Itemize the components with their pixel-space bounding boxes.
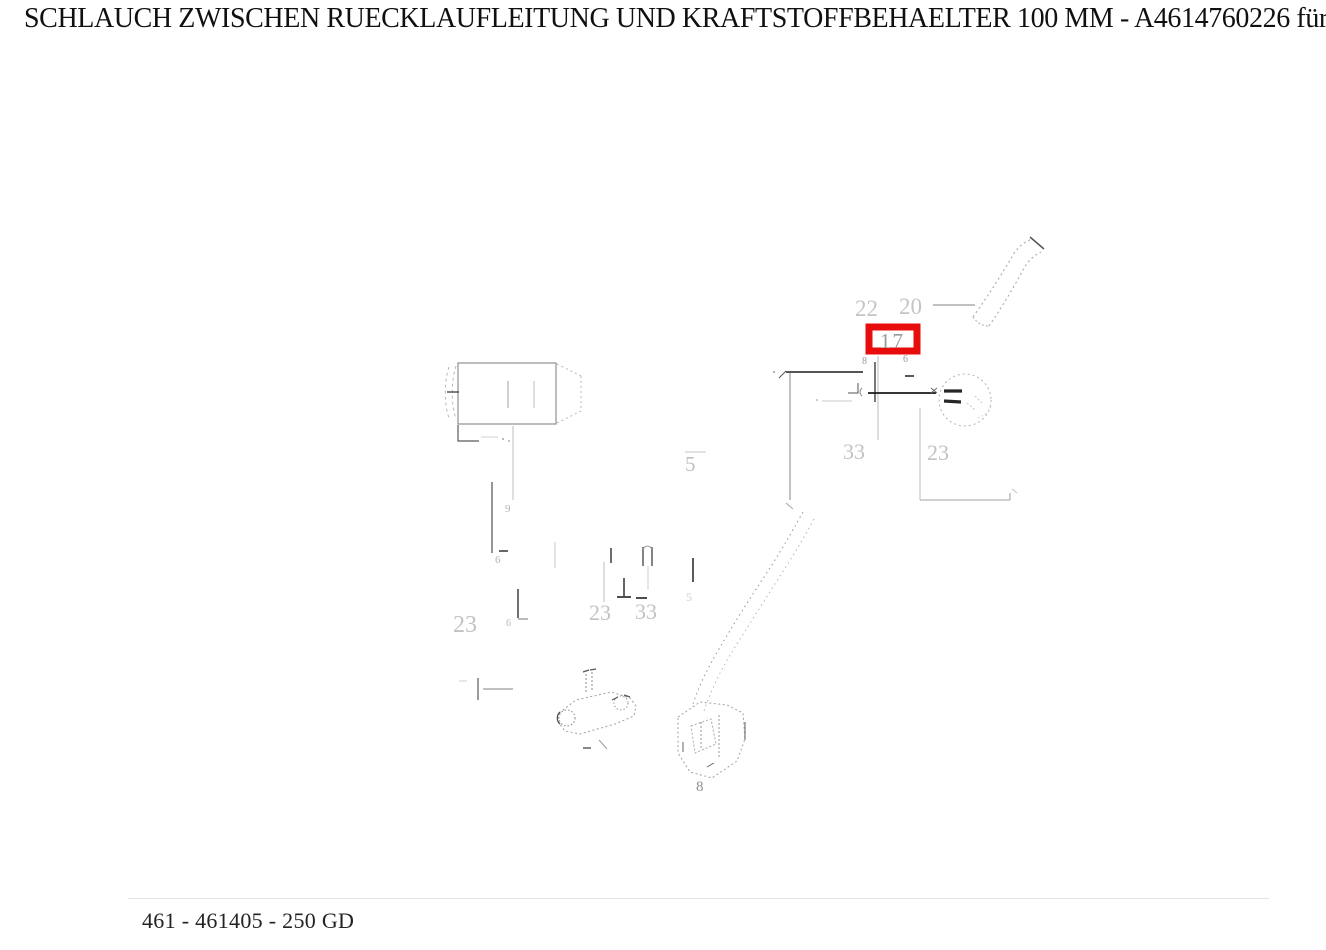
part-label-33-mid: 33	[635, 599, 657, 624]
part-label-23-left: 23	[453, 612, 477, 638]
part-label-6-mid: 6	[506, 618, 511, 629]
right-assembly-group: 8 6 33 23	[773, 354, 1017, 509]
part-label-9: 9	[505, 503, 511, 515]
part-label-33-right: 33	[843, 439, 865, 464]
tank-body	[458, 363, 556, 424]
part-label-8-fitting: 8	[862, 356, 867, 367]
part-label-22: 22	[855, 296, 878, 321]
part-label-20: 20	[899, 294, 922, 319]
part-label-23-mid: 23	[589, 600, 611, 625]
catalog-reference: 461 - 461405 - 250 GD	[142, 908, 354, 934]
left-lines-group: 9 6 23 6	[453, 482, 528, 700]
part-label-23-right: 23	[927, 440, 949, 465]
middle-fittings-group: 5 23 33 5	[555, 452, 706, 625]
fuel-tank-drawing	[445, 363, 581, 500]
part-label-5-small: 5	[686, 590, 692, 604]
hose-clamp-drawing	[939, 374, 992, 426]
part-label-6-left: 6	[495, 554, 501, 566]
return-hose-drawing	[693, 512, 814, 711]
footer-divider	[128, 898, 1269, 899]
part-label-17: 17	[880, 329, 905, 353]
parts-diagram: 9 6 23 6 5 23 33 5	[0, 0, 1326, 950]
tank-cone-end	[557, 364, 581, 423]
curved-hose-drawing	[973, 237, 1044, 326]
bracket-drawing: 8	[678, 702, 745, 795]
part-label-8: 8	[696, 779, 704, 795]
part-label-5: 5	[685, 452, 696, 476]
pump-drawing	[557, 669, 636, 749]
part-label-6-fitting: 6	[903, 354, 908, 365]
highlighted-part-group: 22 20 17	[855, 294, 975, 353]
